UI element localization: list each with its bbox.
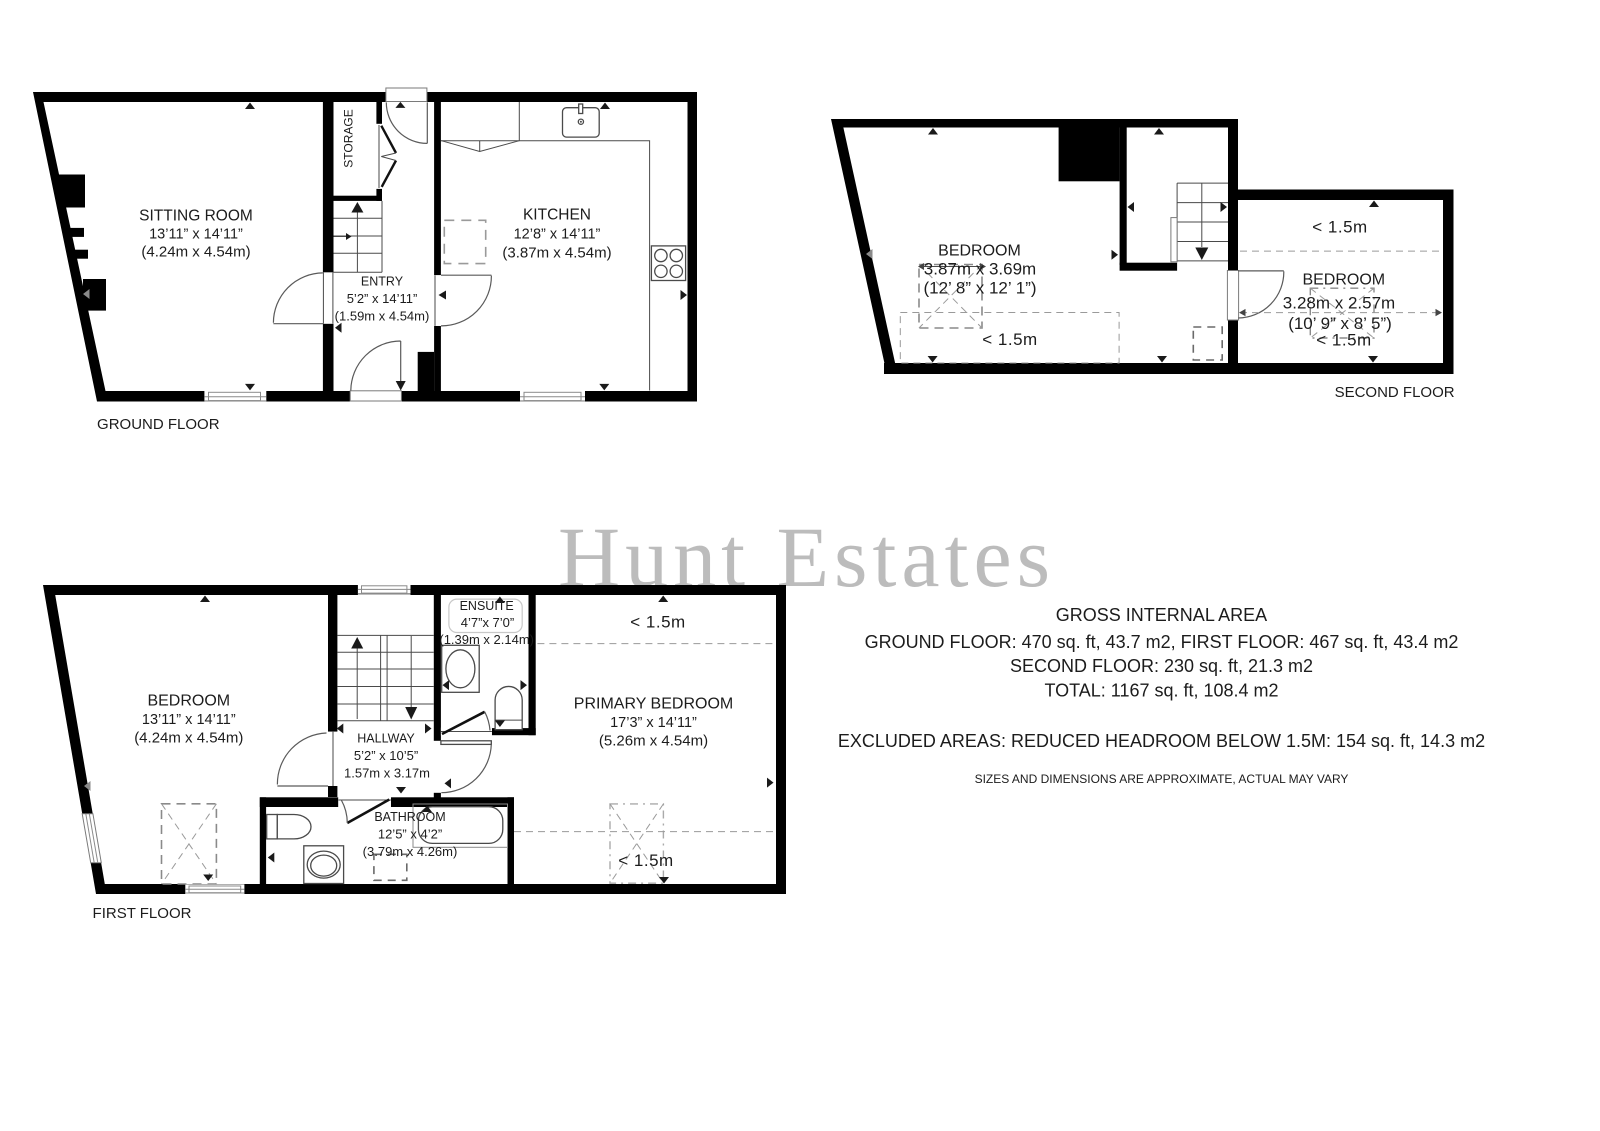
svg-text:(1.59m x 4.54m): (1.59m x 4.54m) (335, 309, 430, 324)
svg-text:BEDROOM: BEDROOM (938, 243, 1021, 260)
svg-text:3.87m x 3.69m: 3.87m x 3.69m (924, 260, 1036, 279)
svg-text:STORAGE: STORAGE (342, 109, 356, 167)
svg-text:BEDROOM: BEDROOM (147, 693, 230, 710)
svg-text:< 1.5m: < 1.5m (618, 851, 673, 870)
svg-text:(4.24m x 4.54m): (4.24m x 4.54m) (141, 244, 250, 261)
svg-text:HALLWAY: HALLWAY (357, 732, 415, 746)
svg-text:5’2” x 14’11”: 5’2” x 14’11” (347, 291, 418, 306)
svg-text:GROUND FLOOR: 470 sq. ft, 43.7: GROUND FLOOR: 470 sq. ft, 43.7 m2, FIRST… (865, 632, 1459, 652)
svg-text:PRIMARY BEDROOM: PRIMARY BEDROOM (574, 696, 733, 713)
svg-text:SECOND FLOOR: SECOND FLOOR (1335, 384, 1455, 401)
svg-text:12’5” x 4’2”: 12’5” x 4’2” (378, 827, 442, 842)
svg-text:(12’ 8” x 12’ 1”): (12’ 8” x 12’ 1”) (923, 279, 1036, 298)
svg-text:(5.26m x 4.54m): (5.26m x 4.54m) (599, 733, 708, 750)
svg-text:< 1.5m: < 1.5m (982, 330, 1037, 349)
svg-text:GROSS INTERNAL AREA: GROSS INTERNAL AREA (1056, 605, 1267, 625)
svg-text:BEDROOM: BEDROOM (1302, 272, 1385, 289)
svg-text:(3.79m x 4.26m): (3.79m x 4.26m) (363, 844, 458, 859)
svg-text:BATHROOM: BATHROOM (374, 810, 445, 824)
svg-text:12’8” x 14’11”: 12’8” x 14’11” (514, 227, 601, 243)
svg-text:SECOND FLOOR: 230 sq. ft, 21.3: SECOND FLOOR: 230 sq. ft, 21.3 m2 (1010, 656, 1313, 676)
svg-text:< 1.5m: < 1.5m (1316, 331, 1371, 350)
svg-text:< 1.5m: < 1.5m (1312, 218, 1367, 237)
svg-text:ENSUITE: ENSUITE (460, 599, 514, 613)
svg-text:3.28m x 2.57m: 3.28m x 2.57m (1283, 294, 1395, 313)
svg-text:(1.39m x 2.14m): (1.39m x 2.14m) (439, 632, 534, 647)
svg-text:EXCLUDED AREAS: REDUCED HEADRO: EXCLUDED AREAS: REDUCED HEADROOM BELOW 1… (838, 731, 1485, 751)
svg-text:FIRST FLOOR: FIRST FLOOR (93, 905, 192, 922)
svg-text:(3.87m x 4.54m): (3.87m x 4.54m) (502, 245, 611, 262)
svg-text:SITTING ROOM: SITTING ROOM (139, 208, 253, 225)
svg-text:4’7”x 7’0”: 4’7”x 7’0” (461, 615, 514, 630)
svg-text:17’3” x 14’11”: 17’3” x 14’11” (610, 715, 697, 731)
svg-text:< 1.5m: < 1.5m (630, 613, 685, 632)
svg-text:(4.24m x 4.54m): (4.24m x 4.54m) (134, 730, 243, 747)
svg-text:ENTRY: ENTRY (361, 275, 404, 289)
svg-text:1.57m x 3.17m: 1.57m x 3.17m (344, 766, 430, 781)
svg-text:TOTAL: 1167 sq. ft, 108.4 m2: TOTAL: 1167 sq. ft, 108.4 m2 (1044, 681, 1278, 701)
svg-text:13’11” x 14’11”: 13’11” x 14’11” (142, 712, 236, 728)
svg-text:13’11” x 14’11”: 13’11” x 14’11” (149, 227, 243, 243)
svg-text:KITCHEN: KITCHEN (523, 207, 591, 224)
svg-text:5’2” x 10’5”: 5’2” x 10’5” (354, 748, 418, 763)
svg-text:GROUND FLOOR: GROUND FLOOR (97, 416, 220, 433)
svg-text:SIZES AND DIMENSIONS ARE APPRO: SIZES AND DIMENSIONS ARE APPROXIMATE, AC… (975, 772, 1349, 786)
